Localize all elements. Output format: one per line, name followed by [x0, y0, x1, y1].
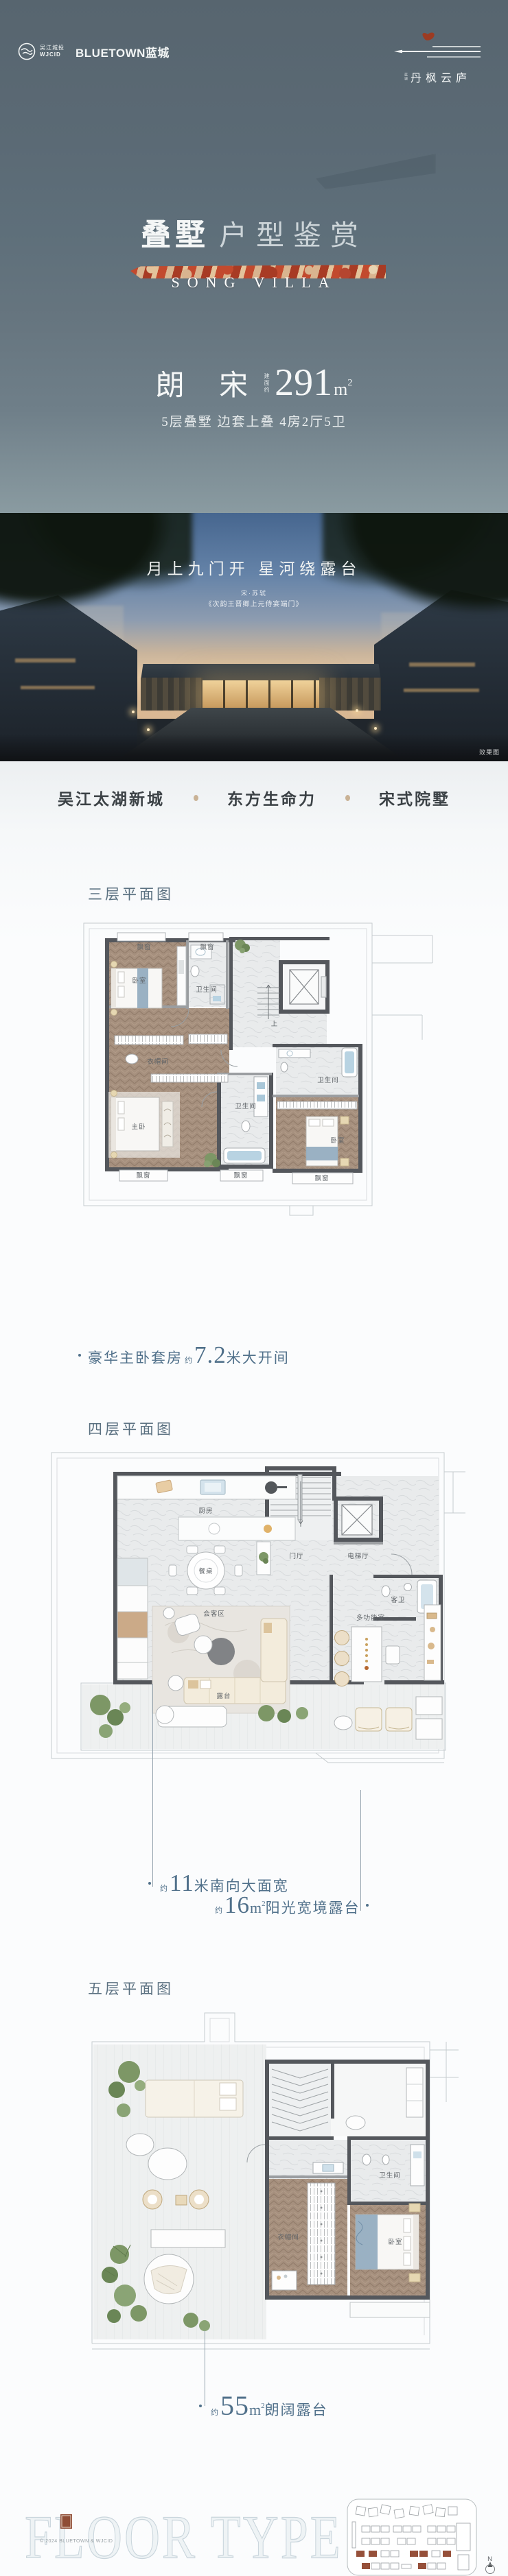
seal-icon [60, 2514, 72, 2529]
area-unit-sup: 2 [347, 378, 352, 388]
page-title: 叠墅户型鉴赏 [0, 210, 508, 254]
room-label-bath: 卫生间 [196, 986, 218, 994]
room-label-terrace: 露台 [216, 1692, 231, 1700]
wjcid-logo-en: WJCID [40, 51, 65, 58]
floor-plan-3f: 卧室 卫生间 衣帽间 主卧 卫生间 卫生间 卧室 上 飘窗 飘窗 飘窗 飘窗 飘… [48, 919, 460, 1221]
copyright-text: © 2024 BLUETOWN & WJCID [40, 2539, 113, 2544]
caption-approx: 约 [215, 1905, 222, 1916]
leader-line [152, 1684, 153, 1887]
area-label: 建面约 [263, 373, 270, 394]
room-label-dining: 餐桌 [198, 1567, 213, 1575]
bay-window-label: 飘窗 [233, 1171, 248, 1180]
photo-slogan: 月上九门开 星河绕露台 [0, 556, 508, 579]
room-label-closet: 衣帽间 [277, 2233, 299, 2241]
elevator-shaft [342, 1505, 372, 1535]
roof-silhouette-decoration [316, 154, 436, 189]
room-label-foyer: 门厅 [289, 1552, 303, 1560]
leader-dot [199, 2405, 202, 2407]
room-label-multi: 多功能室 [356, 1614, 385, 1622]
caption-value: 16 [224, 1892, 250, 1919]
path-light [147, 728, 150, 731]
feature-item: 宋式院墅 [379, 786, 450, 809]
leader-dot [366, 1904, 369, 1907]
site-plan-minimap [347, 2499, 477, 2576]
caption-text: 米大开间 [227, 1347, 290, 1368]
room-label-kitchen: 厨房 [198, 1507, 213, 1515]
project-logo-prefix: 蓝城 [404, 73, 408, 81]
feature-item: 东方生命力 [227, 786, 316, 809]
caption-value: 7.2 [194, 1341, 227, 1369]
caption-value: 11 [170, 1870, 194, 1897]
dot-separator-icon [345, 795, 350, 801]
path-light [356, 709, 358, 712]
bay-window-label: 飘窗 [314, 1174, 329, 1182]
area-value: 291 [275, 366, 332, 400]
room-label-bath: 卫生间 [235, 1102, 257, 1110]
lit-window [409, 663, 475, 667]
foreground-shadow [0, 734, 508, 761]
wjcid-bluetown-logo: 吴江城投 WJCID BLUETOWN蓝城 [18, 43, 170, 60]
room-label-closet: 衣帽间 [147, 1058, 169, 1066]
floor-plan-4f: 厨房 餐桌 门厅 电梯厅 客卫 会客区 多功能室 露台 [41, 1447, 467, 1831]
plan-4f-caption-terrace: 约 16 m2 阳光宽境露台 [213, 1892, 369, 1919]
area-unit: m2 [334, 378, 352, 400]
bay-window-label: 飘窗 [200, 943, 214, 951]
dot-separator-icon [194, 795, 198, 801]
product-specs: 5层叠墅 边套上叠 4房2厅5卫 [0, 412, 508, 430]
caption-text: 豪华主卧套房 [88, 1347, 183, 1368]
leader-dot [148, 1882, 151, 1885]
wjcid-logo-cn: 吴江城投 [40, 45, 65, 51]
stair-direction-label: 上 [271, 1021, 279, 1028]
caption-value: 55 [220, 2389, 249, 2422]
poem-title: 《次韵王晋卿上元侍宴端门》 [0, 598, 508, 608]
poem-author: 宋·苏轼 [0, 588, 508, 597]
project-logo: 蓝城 丹枫云庐 [384, 30, 492, 85]
leader-dot [78, 1354, 81, 1357]
wjcid-logo-icon [18, 43, 36, 60]
page-title-sub: 户型鉴赏 [219, 219, 367, 251]
page-title-main: 叠墅 [141, 218, 209, 252]
room-label-living: 会客区 [203, 1610, 225, 1618]
caption-approx: 约 [211, 2407, 218, 2418]
floor-type-watermark: FLOOR TYPE [25, 2502, 343, 2573]
bay-window-label: 飘窗 [136, 1171, 150, 1180]
plan-4f-label: 四层平面图 [88, 1418, 174, 1439]
room-label-bath: 卫生间 [379, 2171, 401, 2180]
caption-text: 阳光宽境露台 [266, 1897, 360, 1918]
plan-5f-caption: 约 55 m2 朗阔露台 [199, 2389, 328, 2422]
plan-3f-label: 三层平面图 [88, 883, 174, 904]
product-area-row: 朗 宋 建面约 291 m2 [0, 362, 508, 404]
render-note: 效果图 [479, 748, 500, 756]
caption-approx: 约 [160, 1883, 168, 1894]
lit-window [15, 658, 76, 663]
project-logo-name: 丹枫云庐 [411, 69, 471, 85]
plan-3f-caption: 豪华主卧套房 约 7.2 米大开间 [78, 1341, 290, 1369]
room-label-bedroom: 卧室 [132, 977, 146, 985]
floor-plan-5f: 卫生间 衣帽间 卧室 [48, 2006, 460, 2359]
stone-wall [141, 678, 203, 711]
path-light [132, 711, 135, 713]
room-label-elevator-hall: 电梯厅 [347, 1552, 369, 1560]
caption-text: 朗阔露台 [265, 2399, 328, 2420]
poster-page: 吴江城投 WJCID BLUETOWN蓝城 蓝城 丹枫云庐 叠墅户型鉴赏 SON… [0, 0, 508, 2576]
room-label-bath: 卫生间 [317, 1076, 339, 1084]
plan-5f-label: 五层平面图 [88, 1978, 174, 1999]
bluetown-logo: BLUETOWN蓝城 [76, 43, 170, 60]
banner-english-title: SONG VILLA [0, 274, 508, 291]
architecture-render-photo: 月上九门开 星河绕露台 宋·苏轼 《次韵王晋卿上元侍宴端门》 效果图 [0, 513, 508, 761]
lit-window [404, 689, 479, 692]
bay-window-label: 飘窗 [137, 943, 151, 951]
product-name: 朗 宋 [156, 362, 262, 404]
caption-unit: m2 [249, 2401, 265, 2419]
room-label-bedroom: 卧室 [388, 2238, 402, 2246]
room-label-master: 主卧 [131, 1123, 146, 1131]
maple-leaf-icon [422, 33, 434, 40]
feature-tagline-row: 吴江太湖新城 东方生命力 宋式院墅 [0, 786, 508, 809]
feature-item: 吴江太湖新城 [58, 786, 165, 809]
pavilion-mullions [203, 680, 319, 708]
lit-window [21, 686, 95, 689]
room-label-bedroom: 卧室 [330, 1136, 345, 1145]
path-light [374, 727, 377, 730]
cloud-lines-icon [384, 30, 492, 64]
stone-wall [319, 678, 381, 711]
room-label-guest-bath: 客卫 [391, 1596, 405, 1604]
compass-icon: N [481, 2555, 500, 2575]
hero-section: 吴江城投 WJCID BLUETOWN蓝城 蓝城 丹枫云庐 叠墅户型鉴赏 SON… [0, 0, 508, 513]
caption-approx: 约 [185, 1355, 192, 1365]
caption-unit: m2 [250, 1899, 266, 1917]
